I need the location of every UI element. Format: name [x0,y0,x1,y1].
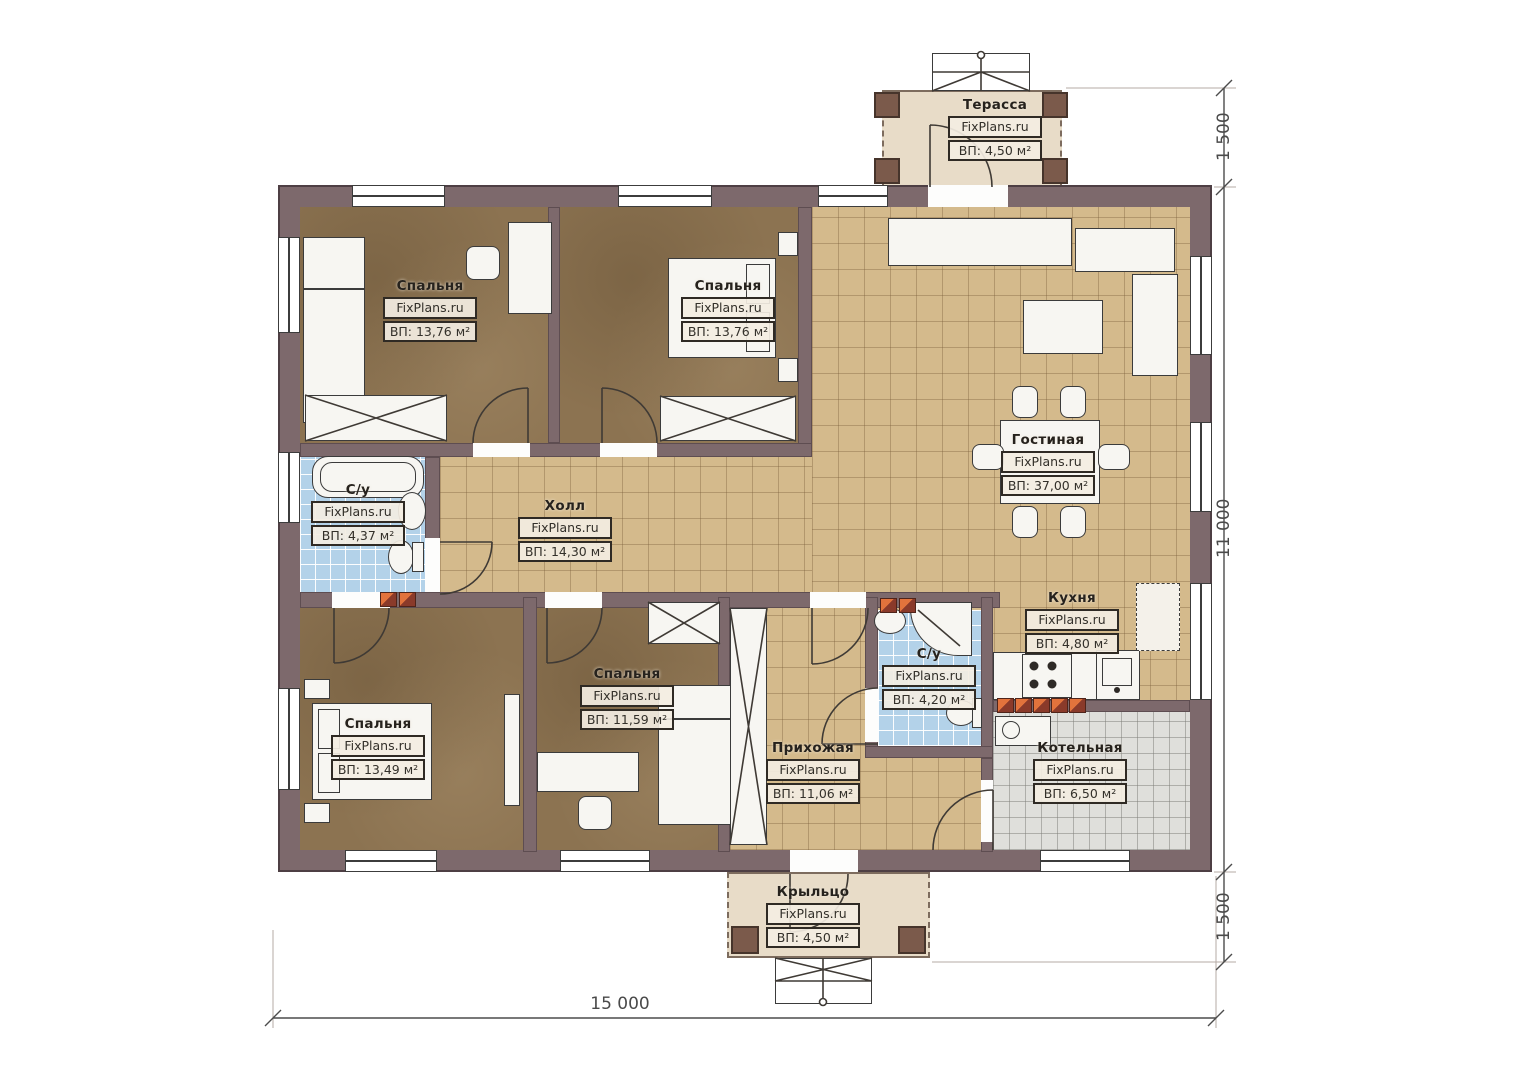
nightstand [304,803,330,823]
kitchen-sink-basin [1102,658,1132,686]
room-area: ВП: 4,37 м² [311,525,405,547]
sideboard [888,218,1072,266]
chair [1060,506,1086,538]
wall [523,597,537,852]
window [278,237,300,333]
window [1040,850,1130,872]
vent-block [1033,698,1050,713]
chair [466,246,500,280]
radiator [504,694,520,806]
dimension-label-bottom: 15 000 [585,994,655,1014]
wardrobe [648,602,720,644]
closet [730,608,767,845]
window [618,185,712,207]
vent-block [880,598,897,613]
door-opening [928,185,1008,207]
window [818,185,888,207]
room-label-kitchen: Кухня FixPlans.ru ВП: 4,80 м² [1012,590,1132,654]
room-label-boiler: Котельная FixPlans.ru ВП: 6,50 м² [1020,740,1140,804]
room-name: Гостиная [988,432,1108,448]
room-label-bedroom-top-left: Спальня FixPlans.ru ВП: 13,76 м² [370,278,490,342]
terrace-post [874,92,900,118]
floor-plan-canvas: 1 500 11 000 1 500 15 000 Терасса FixPla… [0,0,1528,1080]
dimension-label-right-top: 1 500 [1214,113,1234,161]
wardrobe [305,395,447,441]
brand-watermark: FixPlans.ru [766,759,860,781]
room-name: С/у [869,646,989,662]
wall [798,207,812,457]
door-opening [981,780,993,842]
room-label-entry: Прихожая FixPlans.ru ВП: 11,06 м² [753,740,873,804]
room-label-bedroom-bottom-left: Спальня FixPlans.ru ВП: 13,49 м² [318,716,438,780]
vent-block [1069,698,1086,713]
terrace-stairs [932,53,1030,91]
room-area: ВП: 14,30 м² [518,541,612,563]
door-opening [425,538,440,592]
room-label-living: Гостиная FixPlans.ru ВП: 37,00 м² [988,432,1108,496]
room-label-hall: Холл FixPlans.ru ВП: 14,30 м² [505,498,625,562]
room-name: Котельная [1020,740,1140,756]
door-opening [790,850,858,872]
door-opening [545,592,602,608]
room-name: Терасса [935,97,1055,113]
terrace-post [874,158,900,184]
sofa [1132,274,1178,376]
brand-watermark: FixPlans.ru [331,735,425,757]
room-name: С/у [298,482,418,498]
vent-block [899,598,916,613]
brand-watermark: FixPlans.ru [580,685,674,707]
chair [578,796,612,830]
chair [1012,506,1038,538]
toilet-tank [412,542,424,572]
bed-pillow-line [304,288,364,290]
brand-watermark: FixPlans.ru [882,665,976,687]
terrace-post [1042,158,1068,184]
room-area: ВП: 13,76 м² [681,321,775,343]
room-area: ВП: 6,50 м² [1033,783,1127,805]
desk [537,752,639,792]
room-name: Спальня [567,666,687,682]
room-area: ВП: 11,59 м² [580,709,674,731]
door-opening [473,443,530,457]
room-area: ВП: 4,80 м² [1025,633,1119,655]
chair [1012,386,1038,418]
chair [1060,386,1086,418]
nightstand [304,679,330,699]
room-name: Кухня [1012,590,1132,606]
boiler-unit [1002,721,1020,739]
room-name: Спальня [370,278,490,294]
room-area: ВП: 37,00 м² [1001,475,1095,497]
room-label-bath-middle: С/у FixPlans.ru ВП: 4,20 м² [869,646,989,710]
window [1190,583,1212,700]
room-label-bedroom-bottom-middle: Спальня FixPlans.ru ВП: 11,59 м² [567,666,687,730]
window [278,452,300,523]
wall [865,746,993,758]
nightstand [778,232,798,256]
brand-watermark: FixPlans.ru [1001,451,1095,473]
brand-watermark: FixPlans.ru [518,517,612,539]
brand-watermark: FixPlans.ru [766,903,860,925]
sofa [1075,228,1175,272]
window [1190,256,1212,355]
vent-block [997,698,1014,713]
vent-block [399,592,416,607]
window [352,185,445,207]
brand-watermark: FixPlans.ru [1025,609,1119,631]
wardrobe [660,396,796,441]
vent-block [380,592,397,607]
room-label-bedroom-top-middle: Спальня FixPlans.ru ВП: 13,76 м² [668,278,788,342]
room-name: Холл [505,498,625,514]
brand-watermark: FixPlans.ru [681,297,775,319]
nightstand [778,358,798,382]
room-area: ВП: 11,06 м² [766,783,860,805]
window [560,850,650,872]
vent-block [1051,698,1068,713]
room-area: ВП: 13,76 м² [383,321,477,343]
room-label-terrace: Терасса FixPlans.ru ВП: 4,50 м² [935,97,1055,161]
porch-stairs [775,958,872,1004]
door-opening [810,592,866,608]
door-opening [600,443,657,457]
room-name: Спальня [318,716,438,732]
kitchen-cabinet [1136,583,1180,651]
brand-watermark: FixPlans.ru [383,297,477,319]
porch-post [898,926,926,954]
room-name: Спальня [668,278,788,294]
window [1190,422,1212,512]
vent-block [1015,698,1032,713]
room-area: ВП: 4,50 м² [948,140,1042,162]
hall-floor [440,457,812,597]
room-label-porch: Крыльцо FixPlans.ru ВП: 4,50 м² [753,884,873,948]
brand-watermark: FixPlans.ru [1033,759,1127,781]
window [278,688,300,790]
coffee-table [1023,300,1103,354]
room-area: ВП: 4,20 м² [882,689,976,711]
room-area: ВП: 13,49 м² [331,759,425,781]
room-name: Прихожая [753,740,873,756]
brand-watermark: FixPlans.ru [311,501,405,523]
dimension-label-right-bottom: 1 500 [1214,893,1234,941]
desk [508,222,552,314]
stove [1022,654,1072,698]
window [345,850,437,872]
room-name: Крыльцо [753,884,873,900]
room-area: ВП: 4,50 м² [766,927,860,949]
wall [300,443,812,457]
brand-watermark: FixPlans.ru [948,116,1042,138]
dimension-label-right-middle: 11 000 [1214,502,1234,558]
room-label-bath-left: С/у FixPlans.ru ВП: 4,37 м² [298,482,418,546]
